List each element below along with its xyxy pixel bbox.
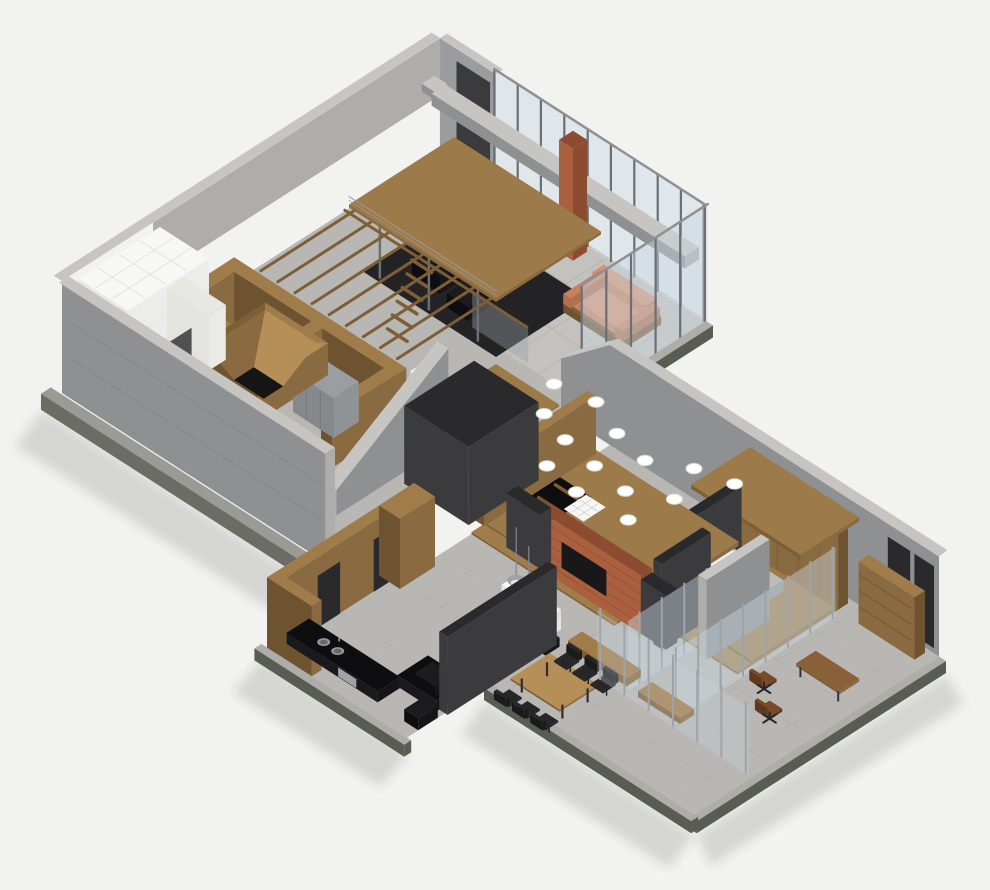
ceiling-light [617,486,633,496]
render-viewport: Isometric 3D cutaway rendering of a loft… [0,0,990,890]
ceiling-light [587,461,603,471]
glass-partition-post [742,604,744,676]
dining-table-leg [546,662,548,676]
bathroom-ledge [209,305,226,371]
office-chair-stem [769,712,771,718]
ceiling-light [609,428,625,438]
ceiling-light [686,463,702,473]
kitchen-sink-basin [320,640,328,645]
dining-chair-leg [523,708,525,716]
dining-chair-leg [606,688,608,696]
dining-chair-leg [541,720,543,728]
kitchen-sink-basin [334,649,342,654]
curtain-wall-mullion [704,206,706,324]
glass-partition-post [832,547,834,619]
ceiling-light [588,397,604,407]
glass-partition-post [787,576,789,648]
dining-chair-leg [588,676,590,684]
office-chair-stem [763,682,765,688]
steel-cabinet-seam [320,391,321,429]
fence-post [599,608,601,680]
fence-post [745,702,747,774]
dining-chair-leg [548,725,550,733]
ceiling-light [568,487,584,497]
ceiling-light [546,379,562,389]
ceiling-light [536,409,552,419]
dining-table-leg [587,688,589,702]
ceiling-light [620,515,636,525]
fence-post [623,624,625,696]
glass-partition-post [809,561,811,633]
pendant-lamp-rod [516,527,517,577]
fence-post [720,686,722,758]
curtain-wall-mullion [655,238,657,356]
ceiling-light [539,461,555,471]
ceiling-light [637,455,653,465]
ceiling-light [666,494,682,504]
glass-partition-post [764,590,766,662]
dining-chair-leg [569,664,571,672]
kitchen-timber-volume [379,506,400,590]
dining-table-leg [521,679,523,693]
dining-chair-leg [562,660,564,668]
office-desk-leg [837,692,839,702]
fence-post [672,655,674,727]
office-bookcase [915,591,926,660]
kitchen-faucet [338,637,340,642]
dining-chair-leg [599,683,601,691]
charcoal-wall-flank [540,508,551,569]
floorplan-render: Isometric 3D cutaway rendering of a loft… [0,0,990,890]
dining-chair-leg [505,697,507,705]
fence-post [648,639,650,711]
fence-post [696,670,698,742]
curtain-wall-mullion [679,222,681,340]
ceiling-light [727,479,743,489]
ceiling-light [557,435,573,445]
dining-table-leg [561,705,563,719]
office-desk-leg [799,667,801,677]
kitchen-charcoal-wall [439,632,447,715]
glass-partition-post [720,619,722,691]
dining-chair-leg [581,672,583,680]
